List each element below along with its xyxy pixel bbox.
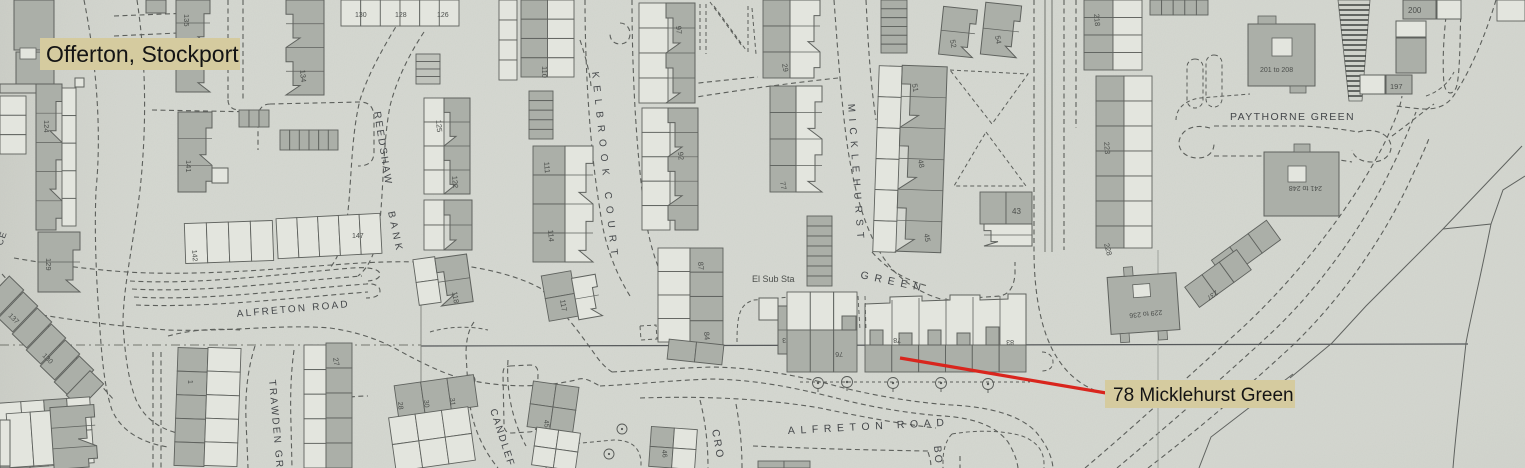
svg-text:28: 28 bbox=[396, 402, 404, 410]
svg-text:201 to 208: 201 to 208 bbox=[1260, 67, 1293, 74]
svg-text:125: 125 bbox=[434, 119, 444, 132]
svg-text:135: 135 bbox=[182, 14, 191, 27]
svg-text:147: 147 bbox=[352, 233, 364, 240]
svg-text:111: 111 bbox=[542, 161, 552, 173]
svg-text:142: 142 bbox=[190, 250, 198, 262]
svg-text:30: 30 bbox=[422, 400, 430, 408]
svg-text:29: 29 bbox=[780, 63, 790, 73]
svg-text:27: 27 bbox=[331, 357, 341, 367]
svg-text:197: 197 bbox=[1390, 82, 1403, 91]
svg-text:Offerton, Stockport: Offerton, Stockport bbox=[46, 41, 239, 67]
svg-text:43: 43 bbox=[1012, 207, 1021, 216]
svg-text:92: 92 bbox=[676, 151, 686, 160]
svg-text:114: 114 bbox=[546, 229, 556, 242]
svg-text:48: 48 bbox=[916, 159, 926, 169]
svg-text:130: 130 bbox=[355, 12, 367, 19]
svg-text:54: 54 bbox=[993, 35, 1003, 45]
svg-text:PAYTHORNE GREEN: PAYTHORNE GREEN bbox=[1230, 111, 1355, 123]
svg-text:El Sub Sta: El Sub Sta bbox=[752, 274, 795, 284]
svg-text:122: 122 bbox=[450, 175, 460, 188]
svg-text:BO: BO bbox=[931, 445, 945, 465]
svg-text:124: 124 bbox=[42, 120, 51, 133]
svg-text:77: 77 bbox=[778, 181, 788, 191]
svg-text:78 Micklehurst Green: 78 Micklehurst Green bbox=[1113, 385, 1294, 406]
svg-text:218: 218 bbox=[1092, 13, 1102, 26]
svg-text:31: 31 bbox=[448, 398, 456, 406]
svg-text:45: 45 bbox=[542, 420, 550, 428]
svg-text:110: 110 bbox=[540, 66, 549, 78]
svg-text:84: 84 bbox=[702, 331, 712, 340]
svg-text:1: 1 bbox=[186, 380, 193, 384]
svg-text:52: 52 bbox=[948, 39, 958, 49]
svg-text:223: 223 bbox=[1102, 141, 1112, 154]
svg-text:83: 83 bbox=[1006, 338, 1014, 345]
svg-text:241 to 248: 241 to 248 bbox=[1289, 184, 1322, 191]
svg-text:128: 128 bbox=[395, 12, 407, 19]
svg-text:78: 78 bbox=[893, 336, 901, 343]
svg-text:134: 134 bbox=[298, 69, 308, 82]
svg-text:129: 129 bbox=[44, 258, 53, 271]
svg-text:126: 126 bbox=[437, 12, 449, 19]
svg-text:97: 97 bbox=[674, 25, 684, 34]
svg-text:46: 46 bbox=[660, 450, 668, 458]
svg-text:76: 76 bbox=[835, 350, 843, 357]
svg-text:200: 200 bbox=[1408, 6, 1422, 15]
svg-text:87: 87 bbox=[696, 261, 706, 270]
svg-text:45: 45 bbox=[922, 233, 932, 243]
svg-text:141: 141 bbox=[184, 160, 193, 173]
svg-text:51: 51 bbox=[910, 83, 920, 93]
